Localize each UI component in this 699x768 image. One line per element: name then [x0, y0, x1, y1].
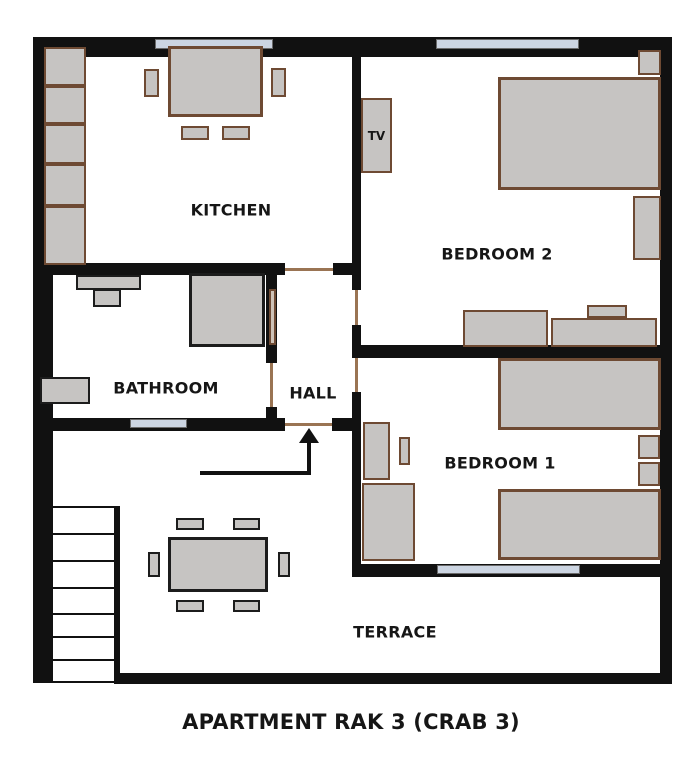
- double-bed-icon: [498, 77, 661, 190]
- room-label-terrace: TERRACE: [353, 623, 437, 642]
- nightstand-icon: [638, 50, 661, 75]
- entrance-arrow-icon: [307, 443, 311, 475]
- window-bedroom1: [437, 565, 580, 574]
- kitchen-table-icon: [168, 46, 263, 117]
- stairs-icon: [53, 506, 120, 683]
- wall-bathroom-hall-lower: [266, 407, 277, 418]
- chair-icon: [222, 126, 250, 140]
- chair-icon: [233, 600, 260, 612]
- kitchen-cabinet-icon: [44, 47, 86, 86]
- chair-icon: [278, 552, 290, 577]
- wall-hall-terrace-stub: [332, 418, 361, 431]
- outer-wall-bottom: [114, 673, 672, 684]
- stair-step: [53, 636, 114, 638]
- stair-step: [53, 560, 114, 562]
- chair-icon: [233, 518, 260, 530]
- entrance-arrow-icon: [200, 471, 311, 475]
- room-label-bedroom2: BEDROOM 2: [441, 245, 552, 264]
- tv-label: TV: [368, 129, 385, 143]
- chair-icon: [176, 518, 204, 530]
- single-bed-icon: [498, 489, 661, 560]
- shower-icon: [189, 273, 265, 347]
- nightstand-icon: [633, 196, 661, 260]
- plan-title: APARTMENT RAK 3 (CRAB 3): [182, 710, 520, 734]
- nightstand-icon: [638, 462, 660, 486]
- wall-kitchen-hall-stub: [333, 263, 352, 275]
- bathroom-counter-icon: [76, 275, 141, 290]
- stair-step: [53, 613, 114, 615]
- door-opening-bathroom-hall: [270, 363, 273, 407]
- chair-icon: [176, 600, 204, 612]
- chair-icon: [271, 68, 286, 97]
- stair-step: [53, 659, 114, 661]
- wall-shelf-icon: [587, 305, 627, 318]
- wardrobe-icon: [363, 422, 390, 480]
- room-label-kitchen: KITCHEN: [191, 201, 272, 220]
- stair-step: [53, 533, 114, 535]
- window-bedroom2: [436, 39, 579, 49]
- room-label-hall: HALL: [289, 384, 336, 403]
- outer-wall-right: [660, 37, 672, 684]
- door-opening-hall-bedroom1: [355, 358, 358, 392]
- kitchen-cabinet-icon: [44, 164, 86, 206]
- wall-kitchen-bedroom2: [352, 57, 361, 290]
- entrance-arrow-head-icon: [299, 428, 319, 443]
- dresser-icon: [463, 310, 548, 347]
- kitchen-cabinet-icon: [44, 124, 86, 164]
- door-opening-kitchen-hall: [285, 268, 333, 271]
- dining-table-icon: [168, 537, 268, 592]
- chair-icon: [148, 552, 160, 577]
- kitchen-cabinet-icon: [44, 206, 86, 265]
- tv-icon: TV: [361, 98, 392, 173]
- wardrobe-icon: [362, 483, 415, 561]
- bathroom-sink-icon: [93, 289, 121, 307]
- stair-step: [53, 587, 114, 589]
- room-label-bedroom1: BEDROOM 1: [444, 454, 555, 473]
- kitchen-cabinet-icon: [44, 86, 86, 124]
- door-opening-entrance: [285, 423, 332, 426]
- single-bed-icon: [498, 358, 661, 430]
- chair-icon: [144, 69, 159, 97]
- side-shelf-icon: [399, 437, 410, 465]
- door-opening-hall-bedroom2: [355, 290, 358, 325]
- window-bathroom: [130, 419, 187, 428]
- floor-plan: TV KITCHEN BATHROOM HALL BEDROOM 2 BEDRO…: [0, 0, 699, 768]
- chair-icon: [181, 126, 209, 140]
- nightstand-icon: [638, 435, 660, 459]
- room-label-bathroom: BATHROOM: [113, 379, 219, 398]
- toilet-icon: [40, 377, 90, 404]
- towel-rail-icon: [269, 289, 276, 345]
- dresser-icon: [551, 318, 657, 347]
